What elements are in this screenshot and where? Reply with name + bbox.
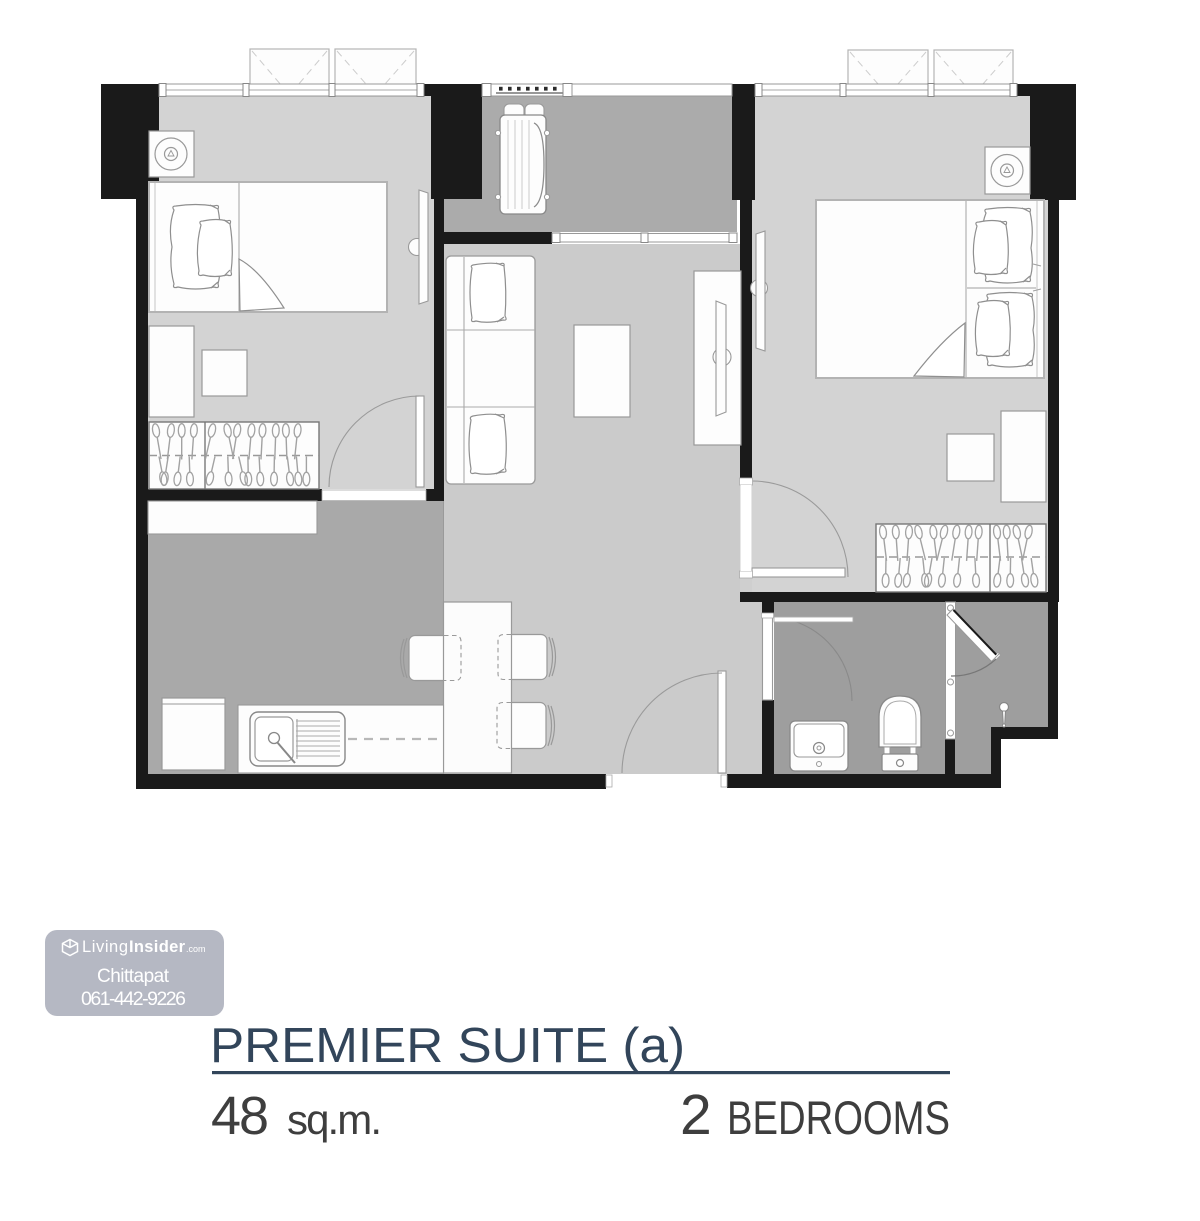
svg-text:061-442-9226: 061-442-9226 (81, 988, 186, 1010)
svg-text:PREMIER SUITE (a): PREMIER SUITE (a) (210, 1019, 685, 1073)
svg-text:Insider: Insider (129, 938, 186, 956)
svg-text:48: 48 (211, 1086, 269, 1146)
svg-text:.com: .com (186, 944, 206, 954)
svg-text:Living: Living (82, 938, 128, 956)
svg-text:sq.m.: sq.m. (287, 1096, 382, 1143)
svg-text:BEDROOMS: BEDROOMS (727, 1091, 950, 1144)
svg-text:Chittapat: Chittapat (97, 966, 170, 987)
svg-text:2: 2 (680, 1083, 712, 1147)
